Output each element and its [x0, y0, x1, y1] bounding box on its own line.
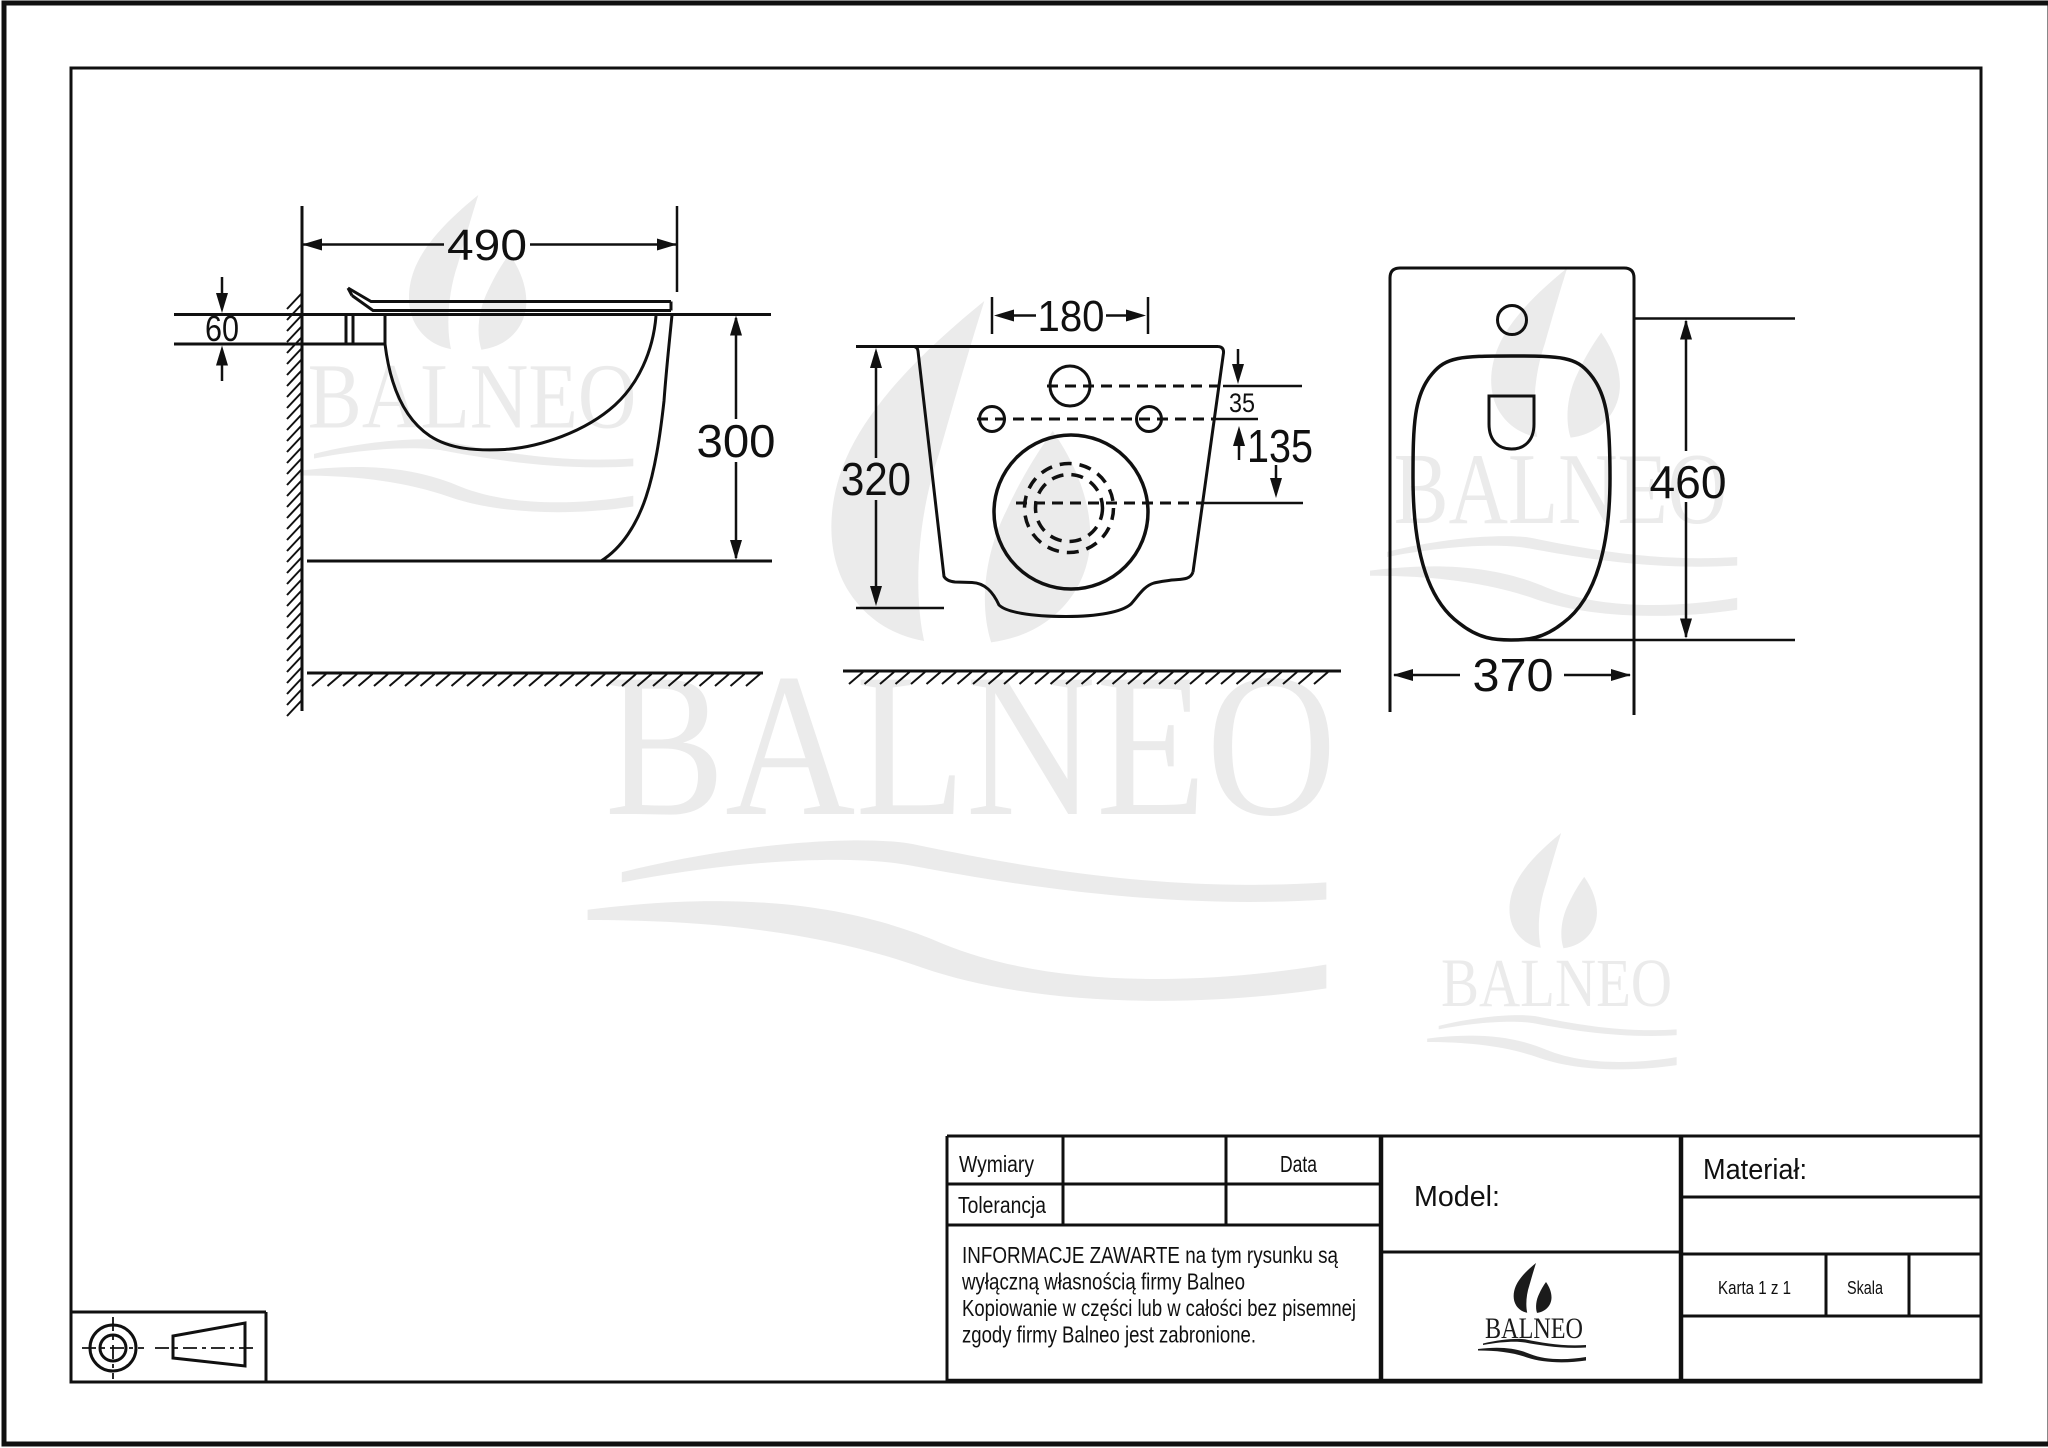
svg-text:35: 35: [1229, 388, 1255, 418]
svg-text:BALNEO: BALNEO: [1485, 1312, 1583, 1345]
svg-text:BALNEO: BALNEO: [1441, 944, 1672, 1021]
svg-text:460: 460: [1650, 456, 1727, 508]
svg-text:Tolerancja: Tolerancja: [958, 1192, 1046, 1218]
svg-text:INFORMACJE ZAWARTE na tym rysu: INFORMACJE ZAWARTE na tym rysunku są: [962, 1242, 1338, 1268]
svg-text:Kopiowanie w części lub w cało: Kopiowanie w części lub w całości bez pi…: [962, 1295, 1356, 1321]
svg-text:300: 300: [697, 415, 776, 467]
svg-text:Skala: Skala: [1847, 1278, 1884, 1298]
svg-text:370: 370: [1473, 649, 1554, 701]
svg-text:zgody firmy Balneo jest zabron: zgody firmy Balneo jest zabronione.: [962, 1322, 1256, 1348]
svg-text:BALNEO: BALNEO: [605, 632, 1337, 859]
svg-text:180: 180: [1038, 292, 1105, 341]
svg-text:60: 60: [205, 308, 239, 349]
svg-text:320: 320: [841, 453, 911, 505]
svg-text:Model:: Model:: [1414, 1181, 1500, 1213]
svg-text:Karta 1 z 1: Karta 1 z 1: [1718, 1278, 1791, 1298]
svg-text:wyłączną własnością firmy Baln: wyłączną własnością firmy Balneo: [961, 1269, 1245, 1295]
svg-text:BALNEO: BALNEO: [308, 346, 637, 449]
svg-text:135: 135: [1247, 420, 1313, 472]
svg-text:Data: Data: [1280, 1151, 1317, 1177]
svg-text:Wymiary: Wymiary: [959, 1151, 1034, 1177]
svg-text:Materiał:: Materiał:: [1703, 1154, 1807, 1186]
svg-text:490: 490: [447, 221, 527, 270]
